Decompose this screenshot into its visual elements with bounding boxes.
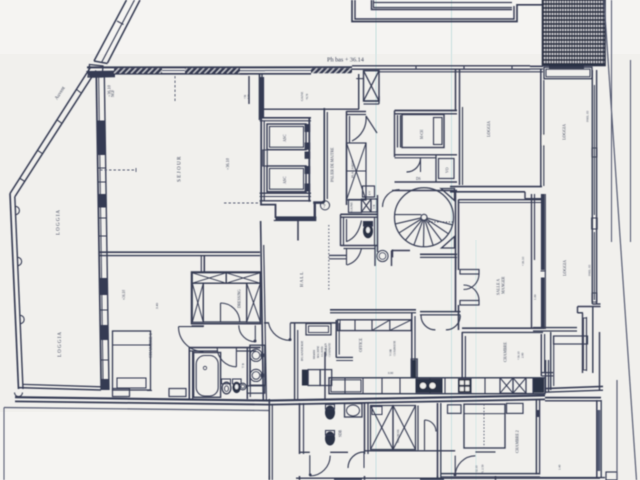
svg-text:+36.10: +36.10 <box>225 158 230 170</box>
svg-text:+36.10: +36.10 <box>122 290 126 300</box>
svg-text:600x600: 600x600 <box>313 349 316 359</box>
svg-text:3.20: 3.20 <box>247 94 250 99</box>
svg-text:PHIL JD: PHIL JD <box>586 110 590 122</box>
svg-text:SECHOIR: SECHOIR <box>396 428 400 443</box>
svg-text:DRESSING: DRESSING <box>238 289 242 308</box>
svg-text:PLACARDS: PLACARDS <box>351 160 355 178</box>
svg-text:LOGGIA: LOGGIA <box>562 260 567 276</box>
svg-text:3.40: 3.40 <box>155 303 159 309</box>
svg-text:T B: T B <box>241 363 245 368</box>
svg-text:2.80: 2.80 <box>521 352 525 358</box>
svg-text:NGF: NGF <box>111 90 115 97</box>
svg-text:LOGGIA: LOGGIA <box>562 124 567 140</box>
svg-text:PL 2.50: PL 2.50 <box>481 464 485 474</box>
svg-text:PALIER DE MAITRE: PALIER DE MAITRE <box>331 147 335 182</box>
svg-text:Ph bas + 36.14: Ph bas + 36.14 <box>327 57 364 64</box>
svg-text:LOGGIA: LOGGIA <box>486 121 491 137</box>
svg-text:ASC: ASC <box>283 176 287 184</box>
svg-text:PHIL JD: PHIL JD <box>588 264 592 276</box>
svg-text:SDB: SDB <box>339 429 343 437</box>
svg-text:ASC: ASC <box>283 134 287 142</box>
svg-text:0.90: 0.90 <box>388 371 394 375</box>
svg-text:H A L L: H A L L <box>299 272 304 287</box>
svg-text:CHAMBRE 2: CHAMBRE 2 <box>515 430 520 453</box>
svg-text:GAINE: GAINE <box>300 92 304 101</box>
svg-text:MACHINE: MACHINE <box>317 345 320 358</box>
svg-text:1.40: 1.40 <box>558 464 562 470</box>
svg-text:+36.10: +36.10 <box>521 256 525 266</box>
svg-text:GAINE: GAINE <box>350 202 354 212</box>
svg-text:A LAVER: A LAVER <box>321 346 324 357</box>
svg-text:S E J O U R: S E J O U R <box>177 156 183 182</box>
svg-text:M-CH: M-CH <box>420 129 424 139</box>
svg-text:1.00: 1.00 <box>533 294 537 300</box>
svg-text:LV: LV <box>368 190 372 195</box>
svg-text:L O G G I A: L O G G I A <box>58 332 63 357</box>
svg-text:DS: DS <box>416 177 421 181</box>
svg-text:L O G G I A: L O G G I A <box>57 210 62 235</box>
svg-text:+32.10: +32.10 <box>475 465 479 474</box>
svg-text:+8.70: +8.70 <box>306 93 309 100</box>
svg-text:VO: VO <box>446 167 450 173</box>
svg-text:CHAMBRE: CHAMBRE <box>503 342 508 362</box>
svg-text:VOIR: VOIR <box>390 349 393 356</box>
svg-text:BUANDERIE: BUANDERIE <box>300 341 304 361</box>
svg-text:OFFICE: OFFICE <box>358 338 363 352</box>
svg-text:MANGER: MANGER <box>501 276 506 294</box>
svg-text:CUISINISTE: CUISINISTE <box>394 340 397 356</box>
svg-text:CUISINISTE: CUISINISTE <box>329 342 332 357</box>
